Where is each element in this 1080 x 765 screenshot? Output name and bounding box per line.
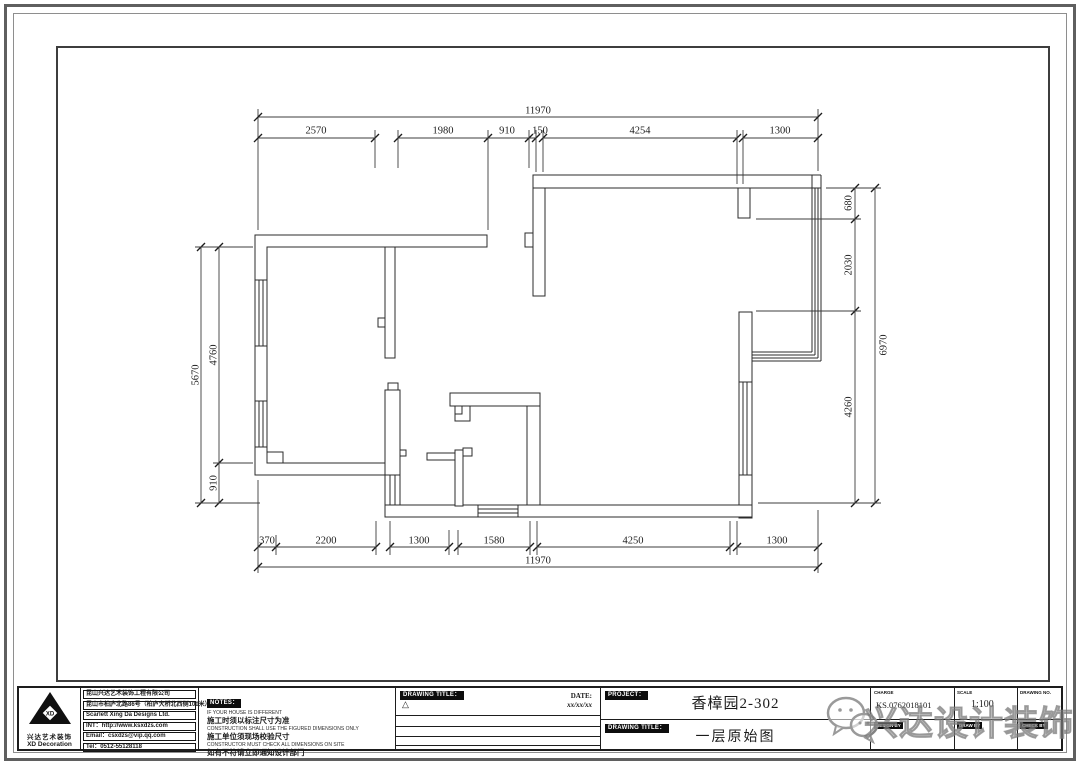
date-label: DATE: (571, 692, 592, 700)
logo-name-en: XD Decoration (19, 741, 80, 748)
company-website: INT：http://www.ksxdzs.com (83, 722, 196, 731)
drawing-title: 一层原始图 (601, 726, 870, 746)
company-logo-cell: XD 兴达艺术装饰 XD Decoration (19, 688, 81, 749)
date-value: xx/xx/xx (567, 701, 592, 709)
title-block: XD 兴达艺术装饰 XD Decoration 昆山兴达艺术装饰工程有限公司 昆… (17, 686, 1063, 751)
dim-top-seg: 4254 (630, 126, 651, 137)
note-line-cn: 施工单位须现场校验尺寸 (207, 733, 395, 741)
drawing-sheet: 11970 2570 1980 910 150 4254 1300 370 22… (0, 0, 1080, 765)
project-cell: PROJECT： 香樟园2-302 DRAWING TITLE： 一层原始图 (601, 688, 871, 749)
note-line-cn: 施工时须以标注尺寸为准 (207, 717, 395, 725)
dim-bottom-total: 11970 (525, 556, 551, 567)
charge-value: KS.0762018101 (876, 700, 932, 710)
dim-top-seg: 1980 (433, 126, 454, 137)
notes-header: NOTES： (207, 699, 241, 708)
notes-cell: NOTES： IF YOUR HOUSE IS DIFFERENT 施工时须以标… (199, 688, 396, 749)
walls (255, 175, 812, 518)
dim-right-seg: 4260 (844, 397, 855, 418)
dim-bottom-seg: 4250 (623, 536, 644, 547)
revision-row-divider (396, 745, 600, 746)
dim-top-seg: 910 (499, 126, 515, 137)
dim-bottom-seg: 1580 (484, 536, 505, 547)
dim-left-seg: 4760 (209, 345, 220, 366)
company-name-cn: 昆山兴达艺术装饰工程有限公司 (83, 690, 196, 699)
charge-label: CHARGE (874, 690, 894, 695)
company-phone: Tel：0512-55128118 (83, 743, 196, 752)
dim-left-total: 5670 (191, 365, 202, 386)
project-name: 香樟园2-302 (601, 692, 870, 713)
dim-bottom-seg: 1300 (767, 536, 788, 547)
revision-cell: DRAWING TITLE： DATE: xx/xx/xx △ (396, 688, 601, 749)
revision-header: DRAWING TITLE： (400, 691, 464, 700)
scale-label: SCALE (957, 690, 972, 695)
svg-text:XD: XD (45, 712, 54, 718)
company-info-cell: 昆山兴达艺术装饰工程有限公司 昆山市柏庐北路86号（柏庐大桥北西侧100米） S… (81, 688, 199, 749)
dim-top-seg: 150 (532, 126, 548, 137)
info-divider (871, 719, 1061, 720)
note-line-cn: 如有不符请立即通知设计部门 (207, 749, 395, 757)
company-email: Email：csxdzs@vip.qq.com (83, 732, 196, 741)
dim-left-seg: 910 (209, 475, 220, 491)
dim-right-seg: 680 (844, 195, 855, 211)
dim-bottom-seg: 1300 (409, 536, 430, 547)
company-address: 昆山市柏庐北路86号（柏庐大桥北西侧100米） (83, 701, 196, 710)
drawing-no-label: DRAWING NO. (1020, 690, 1051, 695)
dim-top-seg: 2570 (306, 126, 327, 137)
dim-bottom-seg: 2200 (316, 536, 337, 547)
draw-by-label: DRAW BY (957, 722, 982, 729)
check-by-label: CHECK BY (1020, 722, 1048, 729)
dim-right-total: 6970 (879, 335, 890, 356)
dim-top-seg: 1300 (770, 126, 791, 137)
revision-row-divider (396, 715, 600, 716)
project-divider (601, 719, 870, 720)
design-by-label: DESIGN BY (874, 722, 903, 729)
xd-logo-icon: XD (28, 691, 72, 725)
bay-window (752, 175, 821, 361)
scale-value: 1:100 (971, 699, 994, 710)
logo-name-cn: 兴达艺术装饰 (19, 731, 80, 741)
revision-row-divider (396, 736, 600, 737)
company-name-en: Scarlett Xing Da Designs Ltd. (83, 711, 196, 720)
info-cell: CHARGE KS.0762018101 SCALE 1:100 DRAWING… (871, 688, 1061, 749)
dim-right-seg: 2030 (844, 255, 855, 276)
revision-delta-icon: △ (402, 700, 409, 709)
dim-top-total: 11970 (525, 106, 551, 117)
dim-bottom-seg: 370 (259, 536, 275, 547)
revision-row-divider (396, 726, 600, 727)
